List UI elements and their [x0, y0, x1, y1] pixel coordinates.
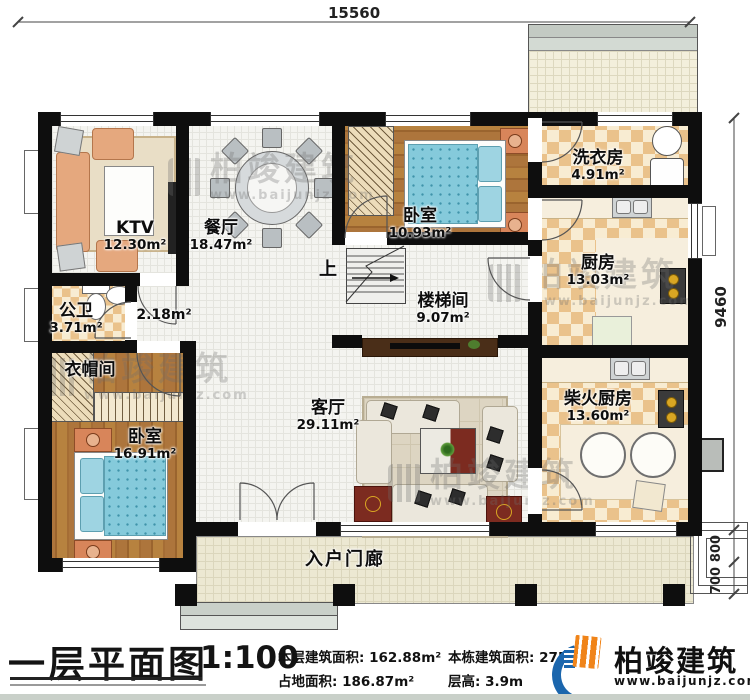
room-area: 13.03m²	[558, 273, 638, 288]
room-name: 衣帽间	[52, 361, 128, 380]
stairs-up-label: 上	[314, 260, 342, 280]
room-area: 13.60m²	[548, 409, 648, 424]
room-name: 卧室	[380, 207, 460, 226]
stat-footprint-area: 占地面积: 186.87m²	[278, 670, 414, 690]
room-label-stairhall: 楼梯间 9.07m²	[403, 292, 483, 326]
brand-website: www.baijunjz.com	[614, 674, 750, 688]
room-label-cloakroom: 衣帽间	[52, 361, 128, 380]
room-label-bath: 公卫 3.71m²	[38, 302, 114, 336]
room-area: 4.91m²	[558, 168, 638, 183]
room-name: 洗衣房	[558, 149, 638, 168]
dim-label-step-700: 700	[709, 567, 724, 594]
room-name: 卧室	[105, 428, 185, 447]
stat-total-area: 本栋建筑面积: 275	[448, 646, 567, 666]
stat-value: 162.88m²	[369, 650, 441, 666]
room-label-kitchen: 厨房 13.03m²	[558, 254, 638, 288]
room-name: 客厅	[288, 399, 368, 418]
room-area: 12.30m²	[95, 238, 175, 253]
hall-area-label: 2.18m²	[134, 308, 194, 324]
stair-direction-arrow	[352, 274, 399, 282]
room-label-firewood-kitchen: 柴火厨房 13.60m²	[548, 390, 648, 424]
room-label-living: 客厅 29.11m²	[288, 399, 368, 433]
logo-orange-building	[572, 635, 601, 670]
stat-label: 本栋建筑面积:	[448, 650, 534, 666]
bottom-gray-strip	[0, 694, 750, 700]
title-underline-thin	[10, 684, 206, 686]
stat-value: 186.87m²	[342, 674, 414, 690]
room-label-entry-porch: 入户门廊	[290, 550, 400, 570]
brand-logo-icon	[552, 634, 610, 692]
dim-label-top: 15560	[328, 4, 380, 22]
room-name: 楼梯间	[403, 292, 483, 311]
room-area: 9.07m²	[403, 311, 483, 326]
room-label-laundry: 洗衣房 4.91m²	[558, 149, 638, 183]
room-area: 16.91m²	[105, 447, 185, 462]
stairs-up-text: 上	[314, 260, 342, 280]
room-name: 厨房	[558, 254, 638, 273]
stat-floor-area: 本层建筑面积: 162.88m²	[278, 646, 441, 666]
stat-floor-height: 层高: 3.9m	[448, 670, 523, 690]
room-area: 10.93m²	[380, 226, 460, 241]
room-label-bedroom1: 卧室 16.91m²	[105, 428, 185, 462]
stat-label: 本层建筑面积:	[278, 650, 364, 666]
title-block: 一层平面图 1:100 本层建筑面积: 162.88m² 占地面积: 186.8…	[0, 630, 750, 700]
floor-plan-sheet: 15560 9460 800 700 KTV 12.30m² 餐厅 18.47m…	[0, 0, 750, 700]
stat-label: 层高:	[448, 674, 480, 690]
stat-value: 3.9m	[485, 674, 523, 690]
room-name: 餐厅	[181, 219, 261, 238]
room-label-dining: 餐厅 18.47m²	[181, 219, 261, 253]
room-area: 3.71m²	[38, 321, 114, 336]
dim-label-right: 9460	[712, 286, 730, 328]
room-label-bedroom2: 卧室 10.93m²	[380, 207, 460, 241]
room-name: 入户门廊	[290, 550, 400, 570]
room-area: 18.47m²	[181, 238, 261, 253]
stat-label: 占地面积:	[278, 674, 337, 690]
room-name: 柴火厨房	[548, 390, 648, 409]
hall-area-value: 2.18m²	[134, 308, 194, 324]
stair-treads	[346, 246, 404, 302]
room-name: 公卫	[38, 302, 114, 321]
room-name: KTV	[95, 219, 175, 238]
title-underline-thick	[10, 677, 202, 680]
room-label-ktv: KTV 12.30m²	[95, 219, 175, 253]
dim-label-step-800: 800	[709, 535, 724, 562]
room-area: 29.11m²	[288, 418, 368, 433]
